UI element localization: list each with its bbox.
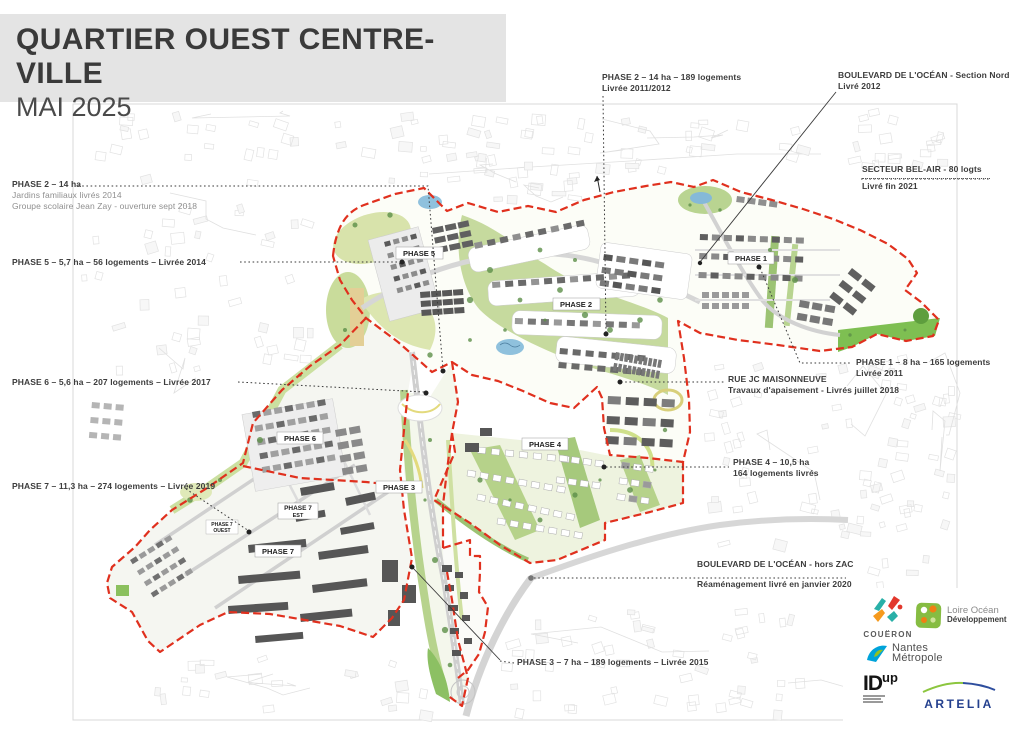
annotation-phase3: PHASE 3 – 7 ha – 189 logements – Livrée …	[517, 657, 709, 668]
map-label-phase1: PHASE 1	[728, 252, 774, 264]
bel-air-dotted-rule	[862, 178, 990, 179]
logo-idup: IDup	[863, 672, 913, 703]
coueron-logo-icon	[870, 594, 906, 624]
page-subtitle: MAI 2025	[16, 92, 506, 123]
annotation-phase1-line1: PHASE 1 – 8 ha – 165 logements	[856, 357, 990, 368]
map-label-phase7-est: PHASE 7 EST	[278, 503, 318, 519]
annotation-rue-jc-line1: RUE JC MAISONNEUVE	[728, 374, 899, 385]
coueron-logo-text: COUËRON	[857, 630, 919, 639]
artelia-logo-text: ARTELIA	[917, 697, 1001, 711]
annotation-rue-jc-maisonneuve: RUE JC MAISONNEUVE Travaux d'apaisement …	[728, 374, 899, 396]
annotation-phase2-north-line1: PHASE 2 – 14 ha – 189 logements	[602, 72, 741, 83]
idup-logo-smallprint	[863, 695, 913, 702]
cadastral-texture	[82, 108, 961, 721]
annotation-phase6: PHASE 6 – 5,6 ha – 207 logements – Livré…	[12, 377, 211, 388]
map-label-phase7: PHASE 7	[255, 545, 301, 557]
annotation-secteur-bel-air-line2: Livré fin 2021	[862, 181, 990, 192]
nantes-logo-line2: Métropole	[892, 653, 943, 663]
annotation-blvd-ocean-nord-line2: Livré 2012	[838, 81, 1010, 92]
annotation-phase4-line1: PHASE 4 – 10,5 ha	[733, 457, 819, 468]
annotation-phase5-line1: PHASE 5 – 5,7 ha – 56 logements – Livrée…	[12, 257, 206, 268]
partner-logos: COUËRON Loire Océan Développement Nantes	[843, 588, 1023, 726]
annotation-phase2-west: PHASE 2 – 14 ha Jardins familiaux livrés…	[12, 179, 197, 212]
annotation-phase2-north: PHASE 2 – 14 ha – 189 logements Livrée 2…	[602, 72, 741, 94]
map-label-phase7-est-line1: PHASE 7	[284, 505, 312, 512]
map-label-phase5-text: PHASE 5	[403, 249, 435, 258]
annotation-phase6-line1: PHASE 6 – 5,6 ha – 207 logements – Livré…	[12, 377, 211, 388]
north-arrow-icon	[594, 176, 600, 192]
annotation-phase7-line1: PHASE 7 – 11,3 ha – 274 logements – Livr…	[12, 481, 215, 492]
annotation-blvd-hors-zac-line2: Réaménagement livré en janvier 2020	[697, 579, 854, 590]
annotation-phase2-west-line1: PHASE 2 – 14 ha	[12, 179, 197, 190]
map-label-phase7-est-line2: EST	[293, 513, 304, 519]
loire-ocean-logo-line2: Développement	[947, 616, 1007, 624]
map-label-phase6-text: PHASE 6	[284, 434, 316, 443]
annotation-blvd-hors-zac-line1: BOULEVARD DE L'OCÉAN - hors ZAC	[697, 559, 854, 570]
logo-nantes-metropole: Nantes Métropole	[865, 642, 943, 664]
map-label-phase4: PHASE 4	[522, 438, 568, 450]
poster-canvas: PHASE 5 PHASE 2 PHASE 1 PHASE 6 PHASE 3 …	[0, 0, 1024, 729]
logo-artelia: ARTELIA	[917, 680, 1001, 711]
map-label-phase7-text: PHASE 7	[262, 547, 294, 556]
annotation-phase5: PHASE 5 – 5,7 ha – 56 logements – Livrée…	[12, 257, 206, 268]
annotation-secteur-bel-air-line1: SECTEUR BEL-AIR - 80 logts	[862, 164, 990, 175]
map-label-phase3: PHASE 3	[376, 481, 422, 493]
page-title: QUARTIER OUEST CENTRE-VILLE	[16, 23, 506, 91]
map-label-phase4-text: PHASE 4	[529, 440, 562, 449]
map-label-phase2-text: PHASE 2	[560, 300, 592, 309]
nantes-metropole-logo-icon	[865, 642, 889, 664]
annotation-blvd-ocean-nord: BOULEVARD DE L'OCÉAN - Section Nord Livr…	[838, 70, 1010, 92]
map-label-phase7-ouest: PHASE 7 OUEST	[206, 520, 238, 534]
logo-loire-ocean: Loire Océan Développement	[915, 602, 1007, 629]
artelia-logo-arc-icon	[917, 680, 1001, 694]
title-block: QUARTIER OUEST CENTRE-VILLE MAI 2025	[0, 14, 506, 102]
map-label-phase2: PHASE 2	[553, 298, 600, 310]
annotation-phase7: PHASE 7 – 11,3 ha – 274 logements – Livr…	[12, 481, 215, 492]
annotation-phase4: PHASE 4 – 10,5 ha 164 logements livrés	[733, 457, 819, 479]
map-label-phase6: PHASE 6	[277, 432, 323, 444]
annotation-phase4-line2: 164 logements livrés	[733, 468, 819, 479]
annotation-phase3-line1: PHASE 3 – 7 ha – 189 logements – Livrée …	[517, 657, 709, 668]
annotation-secteur-bel-air: SECTEUR BEL-AIR - 80 logts Livré fin 202…	[862, 164, 990, 192]
map-label-phase1-text: PHASE 1	[735, 254, 767, 263]
map-label-phase5: PHASE 5	[396, 247, 443, 259]
annotation-rue-jc-line2: Travaux d'apaisement - Livrés juillet 20…	[728, 385, 899, 396]
map-label-phase3-text: PHASE 3	[383, 483, 415, 492]
annotation-phase2-west-line3: Groupe scolaire Jean Zay - ouverture sep…	[12, 201, 197, 212]
map-label-phase7-ouest-line2: OUEST	[213, 528, 230, 534]
loire-ocean-logo-icon	[915, 602, 942, 629]
annotation-blvd-ocean-hors-zac: BOULEVARD DE L'OCÉAN - hors ZAC Réaménag…	[697, 559, 854, 590]
annotation-phase2-north-line2: Livrée 2011/2012	[602, 83, 741, 94]
annotation-phase2-west-line2: Jardins familiaux livrés 2014	[12, 190, 197, 201]
annotation-blvd-ocean-nord-line1: BOULEVARD DE L'OCÉAN - Section Nord	[838, 70, 1010, 81]
idup-logo-text: IDup	[863, 672, 913, 694]
logo-coueron: COUËRON	[857, 594, 919, 639]
